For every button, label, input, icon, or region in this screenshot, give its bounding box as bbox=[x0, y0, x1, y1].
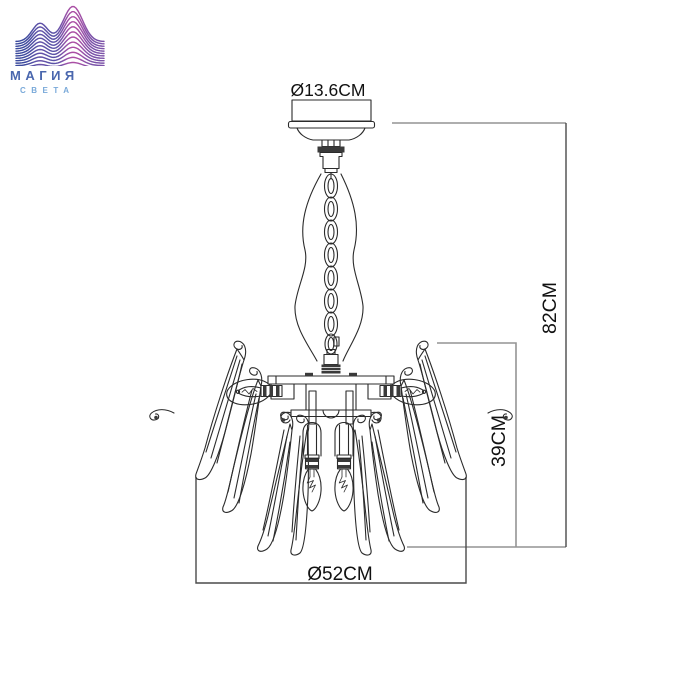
hanging-bulb-right bbox=[335, 423, 353, 512]
chandelier-dimension-diagram: Ø13.6CM 82CM 39CM Ø52CM bbox=[0, 0, 700, 700]
body-diameter-label: Ø52CM bbox=[307, 564, 372, 585]
dimension-lines-primary bbox=[196, 123, 566, 583]
chandelier-frame bbox=[268, 373, 394, 424]
body-height-label: 39CM bbox=[488, 415, 510, 467]
ceiling-canopy bbox=[289, 100, 375, 179]
chandelier-drawing bbox=[150, 100, 512, 555]
canopy-diameter-label: Ø13.6CM bbox=[291, 80, 366, 100]
overall-height-label: 82CM bbox=[539, 282, 561, 334]
suspension-chain bbox=[295, 174, 363, 374]
